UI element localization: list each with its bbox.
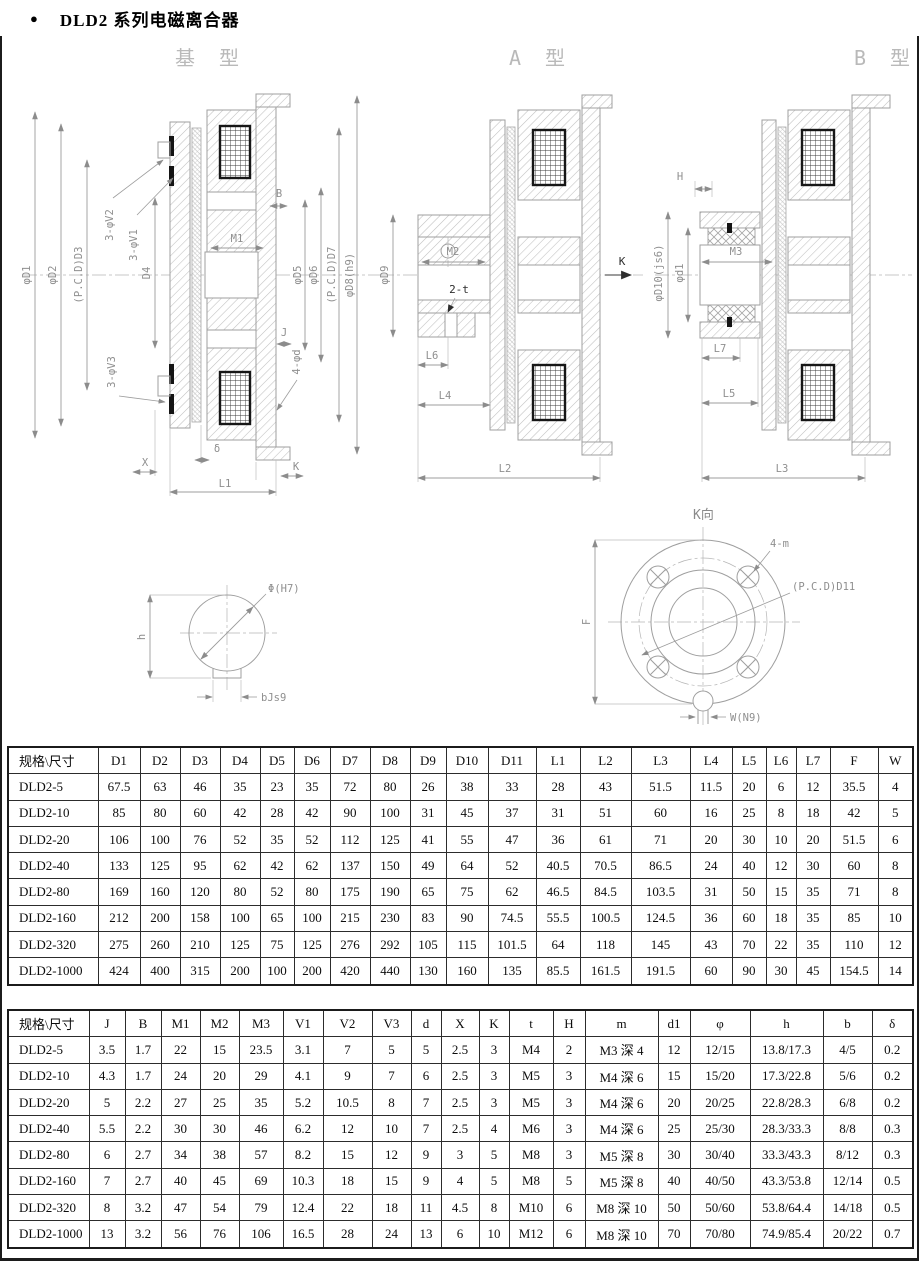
table-cell: 22 — [766, 932, 796, 958]
dim-label-d8: φD8(h9) — [344, 253, 356, 297]
table-cell: 2.5 — [441, 1063, 479, 1089]
table-cell: 7 — [89, 1168, 125, 1194]
table-cell: 45 — [200, 1168, 239, 1194]
table-cell: 35 — [796, 932, 830, 958]
dim-label-h: H — [677, 171, 683, 183]
table-cell: 212 — [98, 905, 140, 931]
table-cell: 25 — [732, 800, 766, 826]
table-row: DLD2-10004244003152001002004204401301601… — [8, 958, 913, 985]
table-cell: 424 — [98, 958, 140, 985]
column-header: d — [411, 1010, 441, 1037]
table-cell: 85 — [830, 905, 878, 931]
table-cell: 2.5 — [441, 1116, 479, 1142]
column-header: D7 — [330, 747, 370, 774]
dim-label-h: h — [136, 634, 148, 640]
table-cell: 90 — [330, 800, 370, 826]
column-header: D3 — [180, 747, 220, 774]
b-type-label: B 型 — [830, 42, 919, 71]
table-cell: 30 — [161, 1116, 200, 1142]
header-row: 规格\尺寸JBM1M2M3V1V2V3dXKtHmd1φhbδ — [8, 1010, 913, 1037]
table-cell: 85 — [98, 800, 140, 826]
table-cell: M4 深 6 — [585, 1063, 658, 1089]
table-row: DLD2-1000133.2567610616.5282413610M126M8… — [8, 1221, 913, 1248]
table-cell: 11 — [411, 1195, 441, 1221]
column-header: M3 — [239, 1010, 283, 1037]
table-cell: 292 — [370, 932, 410, 958]
table-cell: 42 — [260, 853, 294, 879]
table-cell: 24 — [372, 1221, 411, 1248]
table-cell: 100 — [370, 800, 410, 826]
table-cell: DLD2-40 — [8, 853, 98, 879]
column-header: L1 — [536, 747, 580, 774]
table-cell: 6 — [766, 774, 796, 800]
table-cell: 12 — [878, 932, 913, 958]
table-cell: 9 — [323, 1063, 372, 1089]
table-cell: 72 — [330, 774, 370, 800]
dim-label-f: F — [581, 619, 593, 625]
table-cell: M4 深 6 — [585, 1116, 658, 1142]
table-cell: 40.5 — [536, 853, 580, 879]
table-cell: 6.2 — [283, 1116, 323, 1142]
column-header: B — [125, 1010, 161, 1037]
table-cell: 76 — [200, 1221, 239, 1248]
table-cell: 79 — [239, 1195, 283, 1221]
table-cell: 12 — [323, 1116, 372, 1142]
table-cell: 13 — [411, 1221, 441, 1248]
table-cell: 45 — [446, 800, 488, 826]
table-cell: 50/60 — [690, 1195, 750, 1221]
table-cell: 28 — [536, 774, 580, 800]
table-cell: 49 — [410, 853, 446, 879]
dim-label-j: J — [281, 327, 287, 339]
table-cell: 10 — [878, 905, 913, 931]
column-header: L4 — [690, 747, 732, 774]
table-cell: 64 — [446, 853, 488, 879]
table-cell: 7 — [323, 1037, 372, 1063]
table-cell: 75 — [446, 879, 488, 905]
table-cell: 100 — [220, 905, 260, 931]
table-cell: 8 — [89, 1195, 125, 1221]
column-header: M2 — [200, 1010, 239, 1037]
table-cell: M4 深 6 — [585, 1089, 658, 1115]
table-row: DLD2-567.563463523357280263833284351.511… — [8, 774, 913, 800]
table-cell: 38 — [200, 1142, 239, 1168]
table-cell: 7 — [411, 1089, 441, 1115]
dim-label-d10: φD10(js6) — [653, 245, 665, 302]
table-cell: 12.4 — [283, 1195, 323, 1221]
header-row: 规格\尺寸D1D2D3D4D5D6D7D8D9D10D11L1L2L3L4L5L… — [8, 747, 913, 774]
table-cell: 47 — [161, 1195, 200, 1221]
dim-label-b: bJs9 — [261, 692, 286, 704]
table-cell: 101.5 — [488, 932, 536, 958]
table-cell: 31 — [410, 800, 446, 826]
table-cell: 83 — [410, 905, 446, 931]
dim-label-d1: φD1 — [21, 266, 33, 285]
table-cell: 5.2 — [283, 1089, 323, 1115]
table-cell: 5 — [89, 1089, 125, 1115]
table-cell: 28 — [323, 1221, 372, 1248]
table-cell: 80 — [294, 879, 330, 905]
table-cell: 36 — [690, 905, 732, 931]
column-header: D5 — [260, 747, 294, 774]
coil-top — [802, 130, 834, 185]
table-cell: 110 — [830, 932, 878, 958]
dim-label-phi: Φ(H7) — [268, 583, 300, 595]
table-cell: M5 — [509, 1063, 553, 1089]
table-cell: 145 — [631, 932, 690, 958]
table-cell: DLD2-40 — [8, 1116, 89, 1142]
table-cell: 4 — [479, 1116, 509, 1142]
table-cell: 161.5 — [580, 958, 631, 985]
table-cell: 35 — [796, 879, 830, 905]
table-cell: 12 — [766, 853, 796, 879]
table-cell: 65 — [260, 905, 294, 931]
table-cell: 106 — [98, 826, 140, 852]
table-cell: 14/18 — [823, 1195, 872, 1221]
table-cell: DLD2-160 — [8, 1168, 89, 1194]
table-cell: 4.1 — [283, 1063, 323, 1089]
table-cell: 3.2 — [125, 1195, 161, 1221]
column-header: t — [509, 1010, 553, 1037]
table-cell: 52 — [294, 826, 330, 852]
table-cell: 65 — [410, 879, 446, 905]
table-cell: 45 — [796, 958, 830, 985]
table-cell: 100 — [294, 905, 330, 931]
dim-label-4d: 4-φd — [291, 349, 303, 374]
dim-label-d1: φd1 — [674, 264, 686, 283]
dim-label-d9: φD9 — [379, 266, 391, 285]
shaft-bore — [205, 252, 258, 298]
table-cell: 133 — [98, 853, 140, 879]
table-row: DLD2-2052.22725355.210.5872.53M53M4 深 62… — [8, 1089, 913, 1115]
table-row: DLD2-32027526021012575125276292105115101… — [8, 932, 913, 958]
table-cell: 30 — [658, 1142, 690, 1168]
dim-label-d2: φD2 — [47, 266, 59, 285]
table-cell: 70/80 — [690, 1221, 750, 1248]
table-cell: 75 — [260, 932, 294, 958]
table-cell: 12 — [658, 1037, 690, 1063]
dim-label-l4: L4 — [439, 390, 452, 402]
table-cell: 6 — [878, 826, 913, 852]
base-type-drawing: φD1 φD2 (P.C.D)D3 D4 3-φV2 3-φV1 3-φV3 M… — [15, 80, 390, 505]
column-header: X — [441, 1010, 479, 1037]
table-cell: 15/20 — [690, 1063, 750, 1089]
table-cell: 191.5 — [631, 958, 690, 985]
table-cell: 15 — [766, 879, 796, 905]
table-cell: 42 — [830, 800, 878, 826]
table-cell: 8 — [766, 800, 796, 826]
table-cell: 15 — [323, 1142, 372, 1168]
table-cell: 215 — [330, 905, 370, 931]
dim-label-k: K — [619, 255, 626, 268]
table-cell: 3 — [553, 1142, 585, 1168]
column-header: D11 — [488, 747, 536, 774]
table-cell: 10 — [479, 1221, 509, 1248]
table-cell: 17.3/22.8 — [750, 1063, 823, 1089]
column-header: D10 — [446, 747, 488, 774]
table-cell: 23.5 — [239, 1037, 283, 1063]
column-header: J — [89, 1010, 125, 1037]
table-cell: 4.3 — [89, 1063, 125, 1089]
coil-top — [220, 126, 250, 178]
dim-label-d5: φD5 — [292, 266, 304, 285]
table-cell: 5/6 — [823, 1063, 872, 1089]
table-cell: 0.2 — [872, 1089, 913, 1115]
column-header: L2 — [580, 747, 631, 774]
table-cell: 31 — [690, 879, 732, 905]
table-cell: 25/30 — [690, 1116, 750, 1142]
table-cell: 30 — [796, 853, 830, 879]
table-cell: 29 — [239, 1063, 283, 1089]
table-cell: 69 — [239, 1168, 283, 1194]
dim-label-d7: (P.C.D)D7 — [326, 247, 338, 304]
table-cell: 95 — [180, 853, 220, 879]
table-cell: 25 — [658, 1116, 690, 1142]
table-cell: 2.7 — [125, 1168, 161, 1194]
table-cell: 8/12 — [823, 1142, 872, 1168]
table-cell: 23 — [260, 774, 294, 800]
table-cell: 51.5 — [830, 826, 878, 852]
table-cell: 158 — [180, 905, 220, 931]
column-header: H — [553, 1010, 585, 1037]
table-cell: 0.2 — [872, 1063, 913, 1089]
a-type-drawing: φD9 M2 2-t K L6 L4 L2 — [375, 85, 650, 505]
column-header: L5 — [732, 747, 766, 774]
table-cell: 3 — [553, 1063, 585, 1089]
table-cell: 315 — [180, 958, 220, 985]
table-cell: 47 — [488, 826, 536, 852]
table-cell: 0.2 — [872, 1037, 913, 1063]
coil-bottom — [533, 365, 565, 420]
table-cell: DLD2-20 — [8, 826, 98, 852]
table-cell: 5 — [372, 1037, 411, 1063]
table-cell: 46 — [180, 774, 220, 800]
column-header: V3 — [372, 1010, 411, 1037]
table-cell: 6 — [553, 1195, 585, 1221]
table-cell: 100 — [140, 826, 180, 852]
table-cell: 8 — [878, 853, 913, 879]
table-cell: 2.2 — [125, 1116, 161, 1142]
table-cell: 55 — [446, 826, 488, 852]
column-header: D2 — [140, 747, 180, 774]
table-cell: 130 — [410, 958, 446, 985]
table-cell: 85.5 — [536, 958, 580, 985]
table-cell: 154.5 — [830, 958, 878, 985]
dim-label-delta: δ — [214, 443, 220, 455]
table-cell: 125 — [220, 932, 260, 958]
table-cell: 76 — [180, 826, 220, 852]
dim-label-d3: (P.C.D)D3 — [73, 247, 85, 304]
table-cell: 71 — [631, 826, 690, 852]
table-cell: 60 — [690, 958, 732, 985]
table-cell: DLD2-160 — [8, 905, 98, 931]
keyway-detail-drawing: Φ(H7) h bJs9 — [135, 552, 365, 737]
dim-label-b: B — [276, 188, 282, 200]
table-cell: 0.5 — [872, 1168, 913, 1194]
table-cell: 52 — [488, 853, 536, 879]
dim-label-v2: 3-φV2 — [104, 209, 116, 241]
table-cell: 103.5 — [631, 879, 690, 905]
table-cell: 13.8/17.3 — [750, 1037, 823, 1063]
table-cell: 86.5 — [631, 853, 690, 879]
table-cell: 15 — [200, 1037, 239, 1063]
table-cell: 1.7 — [125, 1063, 161, 1089]
table-cell: 18 — [323, 1168, 372, 1194]
table-cell: 137 — [330, 853, 370, 879]
table-cell: 50 — [732, 879, 766, 905]
column-header: b — [823, 1010, 872, 1037]
table-cell: 35 — [294, 774, 330, 800]
column-header: 规格\尺寸 — [8, 1010, 89, 1037]
table-cell: 20 — [796, 826, 830, 852]
dim-label-2t: 2-t — [449, 283, 469, 296]
dim-label-x: X — [142, 457, 149, 469]
table-cell: 5 — [553, 1168, 585, 1194]
table-cell: 40/50 — [690, 1168, 750, 1194]
table-cell: 60 — [830, 853, 878, 879]
table-cell: 18 — [796, 800, 830, 826]
table-cell: M8 深 10 — [585, 1221, 658, 1248]
bullet-icon: ● — [30, 12, 38, 25]
table-cell: 8 — [372, 1089, 411, 1115]
column-header: φ — [690, 1010, 750, 1037]
table-cell: 30 — [766, 958, 796, 985]
table-cell: 43.3/53.8 — [750, 1168, 823, 1194]
table-cell: 2.7 — [125, 1142, 161, 1168]
column-header: V2 — [323, 1010, 372, 1037]
table-cell: 3 — [553, 1116, 585, 1142]
table-cell: 70 — [658, 1221, 690, 1248]
table-cell: 61 — [580, 826, 631, 852]
column-header: 规格\尺寸 — [8, 747, 98, 774]
table-cell: 400 — [140, 958, 180, 985]
column-header: M1 — [161, 1010, 200, 1037]
table-cell: 42 — [294, 800, 330, 826]
table-cell: 2.5 — [441, 1037, 479, 1063]
table-cell: 54 — [200, 1195, 239, 1221]
table-cell: 16.5 — [283, 1221, 323, 1248]
table-cell: 37 — [488, 800, 536, 826]
table-cell: DLD2-80 — [8, 879, 98, 905]
table-cell: 4.5 — [441, 1195, 479, 1221]
table-row: DLD2-16021220015810065100215230839074.55… — [8, 905, 913, 931]
dim-label-l1: L1 — [219, 478, 232, 490]
column-header: L3 — [631, 747, 690, 774]
table-cell: 20/25 — [690, 1089, 750, 1115]
table-cell: 42 — [220, 800, 260, 826]
a-type-label: A 型 — [485, 42, 595, 71]
table-cell: 100.5 — [580, 905, 631, 931]
table-cell: 190 — [370, 879, 410, 905]
dim-label-w: W(N9) — [730, 712, 762, 724]
column-header: D4 — [220, 747, 260, 774]
table-cell: 125 — [140, 853, 180, 879]
table-cell: M6 — [509, 1116, 553, 1142]
table-cell: 420 — [330, 958, 370, 985]
table-cell: 7 — [411, 1116, 441, 1142]
table-cell: 53.8/64.4 — [750, 1195, 823, 1221]
table-cell: DLD2-5 — [8, 774, 98, 800]
table-cell: DLD2-1000 — [8, 1221, 89, 1248]
table-cell: 80 — [220, 879, 260, 905]
table-cell: 3 — [553, 1089, 585, 1115]
table-cell: 125 — [294, 932, 330, 958]
column-header: D8 — [370, 747, 410, 774]
table-cell: 11.5 — [690, 774, 732, 800]
page-title: DLD2 系列电磁离合器 — [60, 6, 240, 31]
b-type-drawing: H φD10(js6) φd1 M3 L7 L5 L3 — [650, 85, 919, 505]
table-cell: 18 — [766, 905, 796, 931]
table-cell: 52 — [220, 826, 260, 852]
table-cell: 30 — [200, 1116, 239, 1142]
dim-label-l5: L5 — [723, 388, 736, 400]
table-cell: 64 — [536, 932, 580, 958]
coil-bottom — [802, 365, 834, 420]
dim-label-l2: L2 — [499, 463, 512, 475]
table-cell: 34 — [161, 1142, 200, 1168]
table-cell: 35 — [220, 774, 260, 800]
table-cell: M5 深 8 — [585, 1168, 658, 1194]
table-cell: DLD2-20 — [8, 1089, 89, 1115]
table-row: DLD2-20106100765235521121254155473661712… — [8, 826, 913, 852]
table-cell: 60 — [732, 905, 766, 931]
table-cell: 106 — [239, 1221, 283, 1248]
column-header: D6 — [294, 747, 330, 774]
table-cell: 10 — [372, 1116, 411, 1142]
table-cell: 230 — [370, 905, 410, 931]
table-cell: 9 — [411, 1168, 441, 1194]
table-cell: 120 — [180, 879, 220, 905]
table-cell: 169 — [98, 879, 140, 905]
table-cell: 62 — [220, 853, 260, 879]
table-cell: 3.2 — [125, 1221, 161, 1248]
table-cell: DLD2-10 — [8, 1063, 89, 1089]
table-cell: 200 — [140, 905, 180, 931]
table-cell: 8.2 — [283, 1142, 323, 1168]
table-cell: 40 — [732, 853, 766, 879]
table-cell: 51 — [580, 800, 631, 826]
table-cell: 3.1 — [283, 1037, 323, 1063]
table-cell: 20 — [200, 1063, 239, 1089]
table-cell: 112 — [330, 826, 370, 852]
table-cell: 35 — [260, 826, 294, 852]
table-cell: 6 — [89, 1142, 125, 1168]
table-cell: 3.5 — [89, 1037, 125, 1063]
table-cell: 100 — [260, 958, 294, 985]
table-cell: 22 — [323, 1195, 372, 1221]
table-row: DLD2-8016916012080528017519065756246.584… — [8, 879, 913, 905]
table-cell: 74.9/85.4 — [750, 1221, 823, 1248]
table-cell: 20 — [658, 1089, 690, 1115]
table-cell: 6 — [411, 1063, 441, 1089]
table-cell: 38 — [446, 774, 488, 800]
column-header: δ — [872, 1010, 913, 1037]
table-cell: 90 — [732, 958, 766, 985]
table-cell: 2.2 — [125, 1089, 161, 1115]
table-cell: 43 — [580, 774, 631, 800]
table-cell: 440 — [370, 958, 410, 985]
column-header: V1 — [283, 1010, 323, 1037]
table-cell: 35.5 — [830, 774, 878, 800]
table-cell: DLD2-320 — [8, 1195, 89, 1221]
dim-label-l7: L7 — [714, 343, 727, 355]
column-header: D1 — [98, 747, 140, 774]
table-cell: 22 — [161, 1037, 200, 1063]
table-row: DLD2-16072.740456910.31815945M85M5 深 840… — [8, 1168, 913, 1194]
table-cell: 18 — [372, 1195, 411, 1221]
table-cell: 57 — [239, 1142, 283, 1168]
column-header: L7 — [796, 747, 830, 774]
